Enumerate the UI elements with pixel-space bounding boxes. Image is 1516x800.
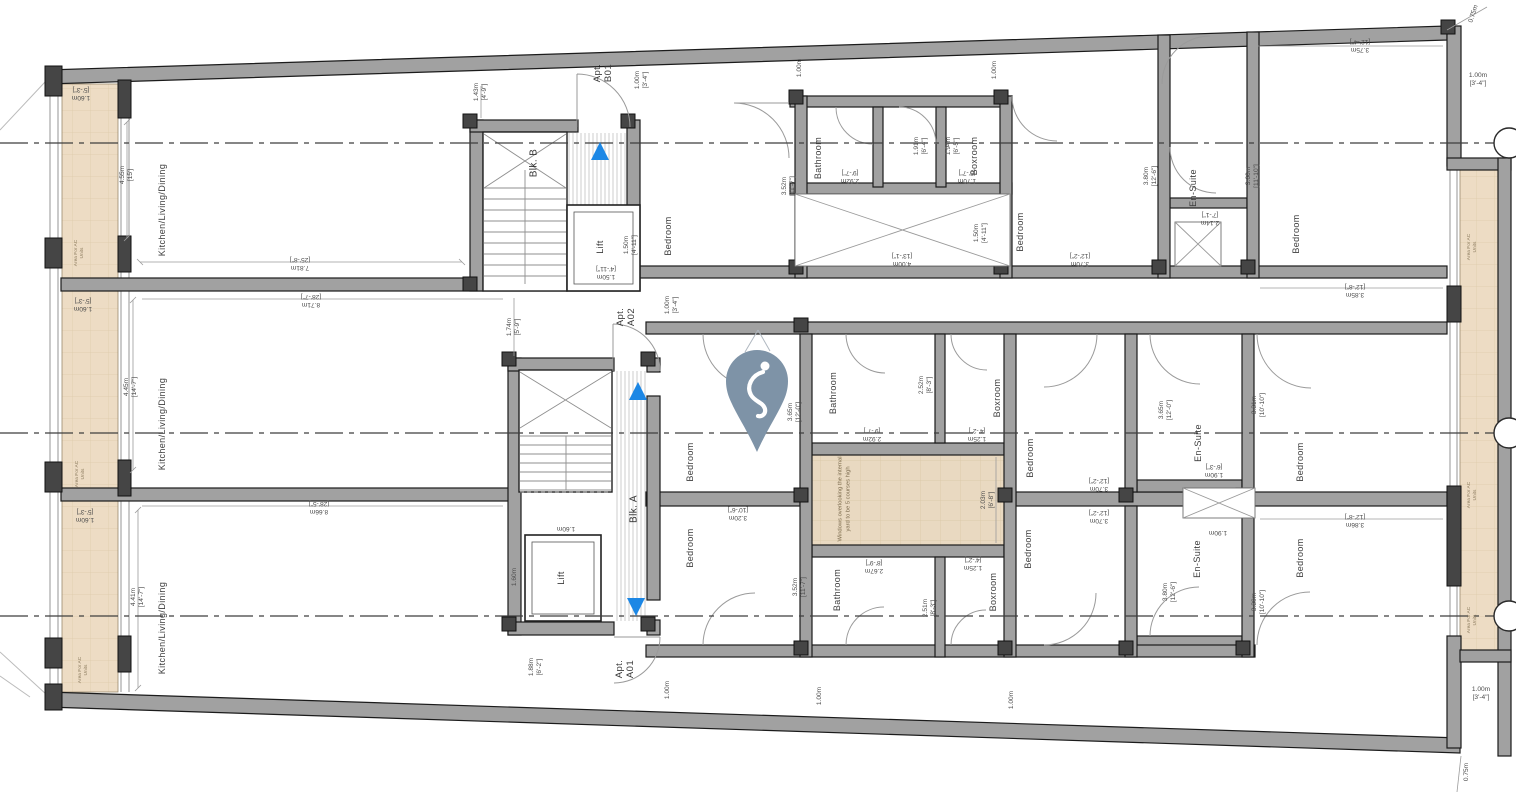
dim-1-00: 1.00m <box>816 687 824 705</box>
room-label-bathroom: Bathroom <box>813 137 823 179</box>
dim-3-75: 3.75m[12'-4"] <box>1350 37 1370 53</box>
outer-wall-bottom <box>47 692 1460 753</box>
dim-3-60: 3.60m[11'-10"] <box>1245 164 1261 188</box>
ac-strip-right <box>1460 162 1498 650</box>
dim-8-71: 8.71m[28'-7"] <box>301 292 321 308</box>
dim-3-20: 3.20m[10'-6"] <box>728 505 748 521</box>
dim-4-45: 4.45m[14'-7"] <box>123 377 139 397</box>
room-label-ensuite: En-Suite <box>1193 424 1203 462</box>
dim-4-41: 4.41m[14'-7"] <box>130 587 146 607</box>
dim-4-55: 4.55m[15'] <box>119 166 135 184</box>
dim-1-60: 1.60m[5'-3"] <box>76 507 94 523</box>
dim-3-86: 3.86m[12'-8"] <box>1345 512 1365 528</box>
dim-1-88: 1.88m[6'-2"] <box>528 658 544 676</box>
dim-0-75: 0.75m <box>1463 763 1471 781</box>
room-label-bedroom: Bedroom <box>1023 529 1033 568</box>
dim-3-65: 3.65m[12'-0"] <box>787 402 803 422</box>
stairs-blk-a <box>519 370 612 492</box>
room-label-bathroom: Bathroom <box>828 372 838 414</box>
room-label-bedroom: Bedroom <box>1015 212 1025 251</box>
dim-1-60: 1.60m[5'-3"] <box>72 85 90 101</box>
ac-area-note: Area For AC Units <box>75 459 87 489</box>
dim-1-00: 1.00m[3'-4"] <box>1469 72 1487 88</box>
dim-2-92: 2.92m[9'-7"] <box>863 426 881 442</box>
dim-1-94: 1.94m[6'-5"] <box>945 137 961 155</box>
dim-1-00: 1.00m[3'-4"] <box>664 296 680 314</box>
dim-1-90: 1.90m <box>1209 528 1227 536</box>
dim-3-31: 3.31m[10'-10"] <box>1251 393 1267 417</box>
yard-note: Windows overlooking the internal yard to… <box>837 455 852 543</box>
room-label-bedroom: Bedroom <box>1291 214 1301 253</box>
dim-3-85: 3.85m[12'-8"] <box>1345 282 1365 298</box>
dim-1-00: 1.00m[3'-4"] <box>634 71 650 89</box>
dim-2-14: 2.14m[7'-1"] <box>1201 210 1219 226</box>
ac-area-note: Area For AC Units <box>1467 480 1479 510</box>
dim-1-70: 1.70m[5'-7"] <box>958 168 976 184</box>
ac-area-note: Area For AC Units <box>1467 232 1479 262</box>
dim-1-50: 1.50m[4'-11"] <box>623 235 639 255</box>
dim-3-52: 3.52m[11'-7"] <box>792 577 808 597</box>
dim-2-52: 2.52m[8'-3"] <box>918 376 934 394</box>
dim-1-25: 1.25m[4'-2"] <box>968 426 986 442</box>
grid-ref-circle <box>1494 128 1516 158</box>
dim-1-74: 1.74m[5'-9"] <box>506 318 522 336</box>
ac-area-note: Area For AC Units <box>74 238 86 268</box>
dim-2-67: 2.67m[8'-9"] <box>865 558 883 574</box>
room-label-bedroom: Bedroom <box>1295 442 1305 481</box>
room-label-lift-b: Lift <box>595 240 605 254</box>
dim-1-60: 1.60m[5'-3"] <box>74 296 92 312</box>
dim-3-70: 3.70m[12'-2"] <box>1070 251 1090 267</box>
room-label-boxroom: Boxroom <box>988 573 998 612</box>
room-label-boxroom: Boxroom <box>992 379 1002 418</box>
block-label-b: Blk. B <box>529 149 540 178</box>
floor-plan-page: { "rooms": { "kitchen": "Kitchen/Living/… <box>0 0 1516 800</box>
dim-1-50: 1.50m[4'-11"] <box>596 264 616 280</box>
dim-1-00: 1.00m <box>664 681 672 699</box>
room-label-kitchen-top: Kitchen/Living/Dining <box>157 164 167 256</box>
block-label-a: Blk. A <box>629 495 640 523</box>
apartment-label-line: A02 <box>627 308 638 327</box>
dim-3-30: 3.30m[10'-10"] <box>1251 590 1267 614</box>
apartment-label-line: A01 <box>626 660 637 679</box>
dim-4-00: 4.00m[13'-1"] <box>892 251 912 267</box>
dim-3-70: 3.70m[12'-2"] <box>1089 476 1109 492</box>
apartment-label-a02: Apt. A02 <box>616 308 638 327</box>
room-label-ensuite: En-Suite <box>1192 540 1202 578</box>
room-label-lift-a: Lift <box>556 571 566 585</box>
dim-3-80: 3.80m[12'-6"] <box>1143 166 1159 186</box>
dim-1-25: 1.25m[4'-2"] <box>964 555 982 571</box>
apartment-label-a01: Apt. A01 <box>615 660 637 679</box>
stairs-blk-b <box>483 132 567 291</box>
ac-area-note: Area For AC Units <box>1467 605 1479 635</box>
dim-1-00: 1.00m <box>796 59 804 77</box>
dim-3-80: 3.80m[12'-6"] <box>1162 582 1178 602</box>
room-label-kitchen-bottom: Kitchen/Living/Dining <box>157 582 167 674</box>
dim-1-50: 1.50m[4'-11"] <box>973 223 989 243</box>
dim-2-03: 2.03m[6'-8"] <box>980 491 996 509</box>
dim-1-00: 1.00m[3'-4"] <box>1472 686 1490 702</box>
room-label-bathroom: Bathroom <box>832 569 842 611</box>
dim-1-60: 1.60m <box>511 568 519 586</box>
room-label-kitchen-mid: Kitchen/Living/Dining <box>157 378 167 470</box>
ac-strip-left <box>62 84 118 692</box>
outer-wall-top <box>47 26 1447 84</box>
room-label-bedroom: Bedroom <box>1295 538 1305 577</box>
dim-2-51: 2.51m[8'-3"] <box>922 599 938 617</box>
dim-1-43: 1.43m[4'-9"] <box>473 83 489 101</box>
room-label-ensuite: En-Suite <box>1188 169 1198 207</box>
dim-7-81: 7.81m[25'-8"] <box>290 255 310 271</box>
apartment-label-line: B01 <box>604 64 615 83</box>
dim-1-60: 1.60m <box>557 524 575 532</box>
dim-1-00: 1.00m <box>991 61 999 79</box>
room-label-bedroom: Bedroom <box>663 216 673 255</box>
room-label-bedroom: Bedroom <box>685 528 695 567</box>
dim-1-00: 1.00m <box>1008 691 1016 709</box>
ac-area-note: Area For AC Units <box>78 655 90 685</box>
dim-1-91: 1.91m[6'-4"] <box>913 137 929 155</box>
apartment-label-b01: Apt. B01 <box>593 64 615 83</box>
location-pin-icon[interactable] <box>726 330 788 452</box>
dim-1-90: 1.90m[6'-3"] <box>1205 462 1223 478</box>
dim-2-92: 2.92m[9'-7"] <box>841 168 859 184</box>
room-label-bedroom: Bedroom <box>685 442 695 481</box>
dim-8-66: 8.66m[28'-5"] <box>309 499 329 515</box>
dim-3-52: 3.52m[11'-7"] <box>781 176 797 196</box>
floor-plan-drawing <box>0 0 1516 800</box>
site-boundary-lines <box>0 82 47 697</box>
dim-3-65: 3.65m[12'-0"] <box>1158 400 1174 420</box>
room-label-bedroom: Bedroom <box>1025 438 1035 477</box>
dim-3-70: 3.70m[12'-2"] <box>1089 508 1109 524</box>
